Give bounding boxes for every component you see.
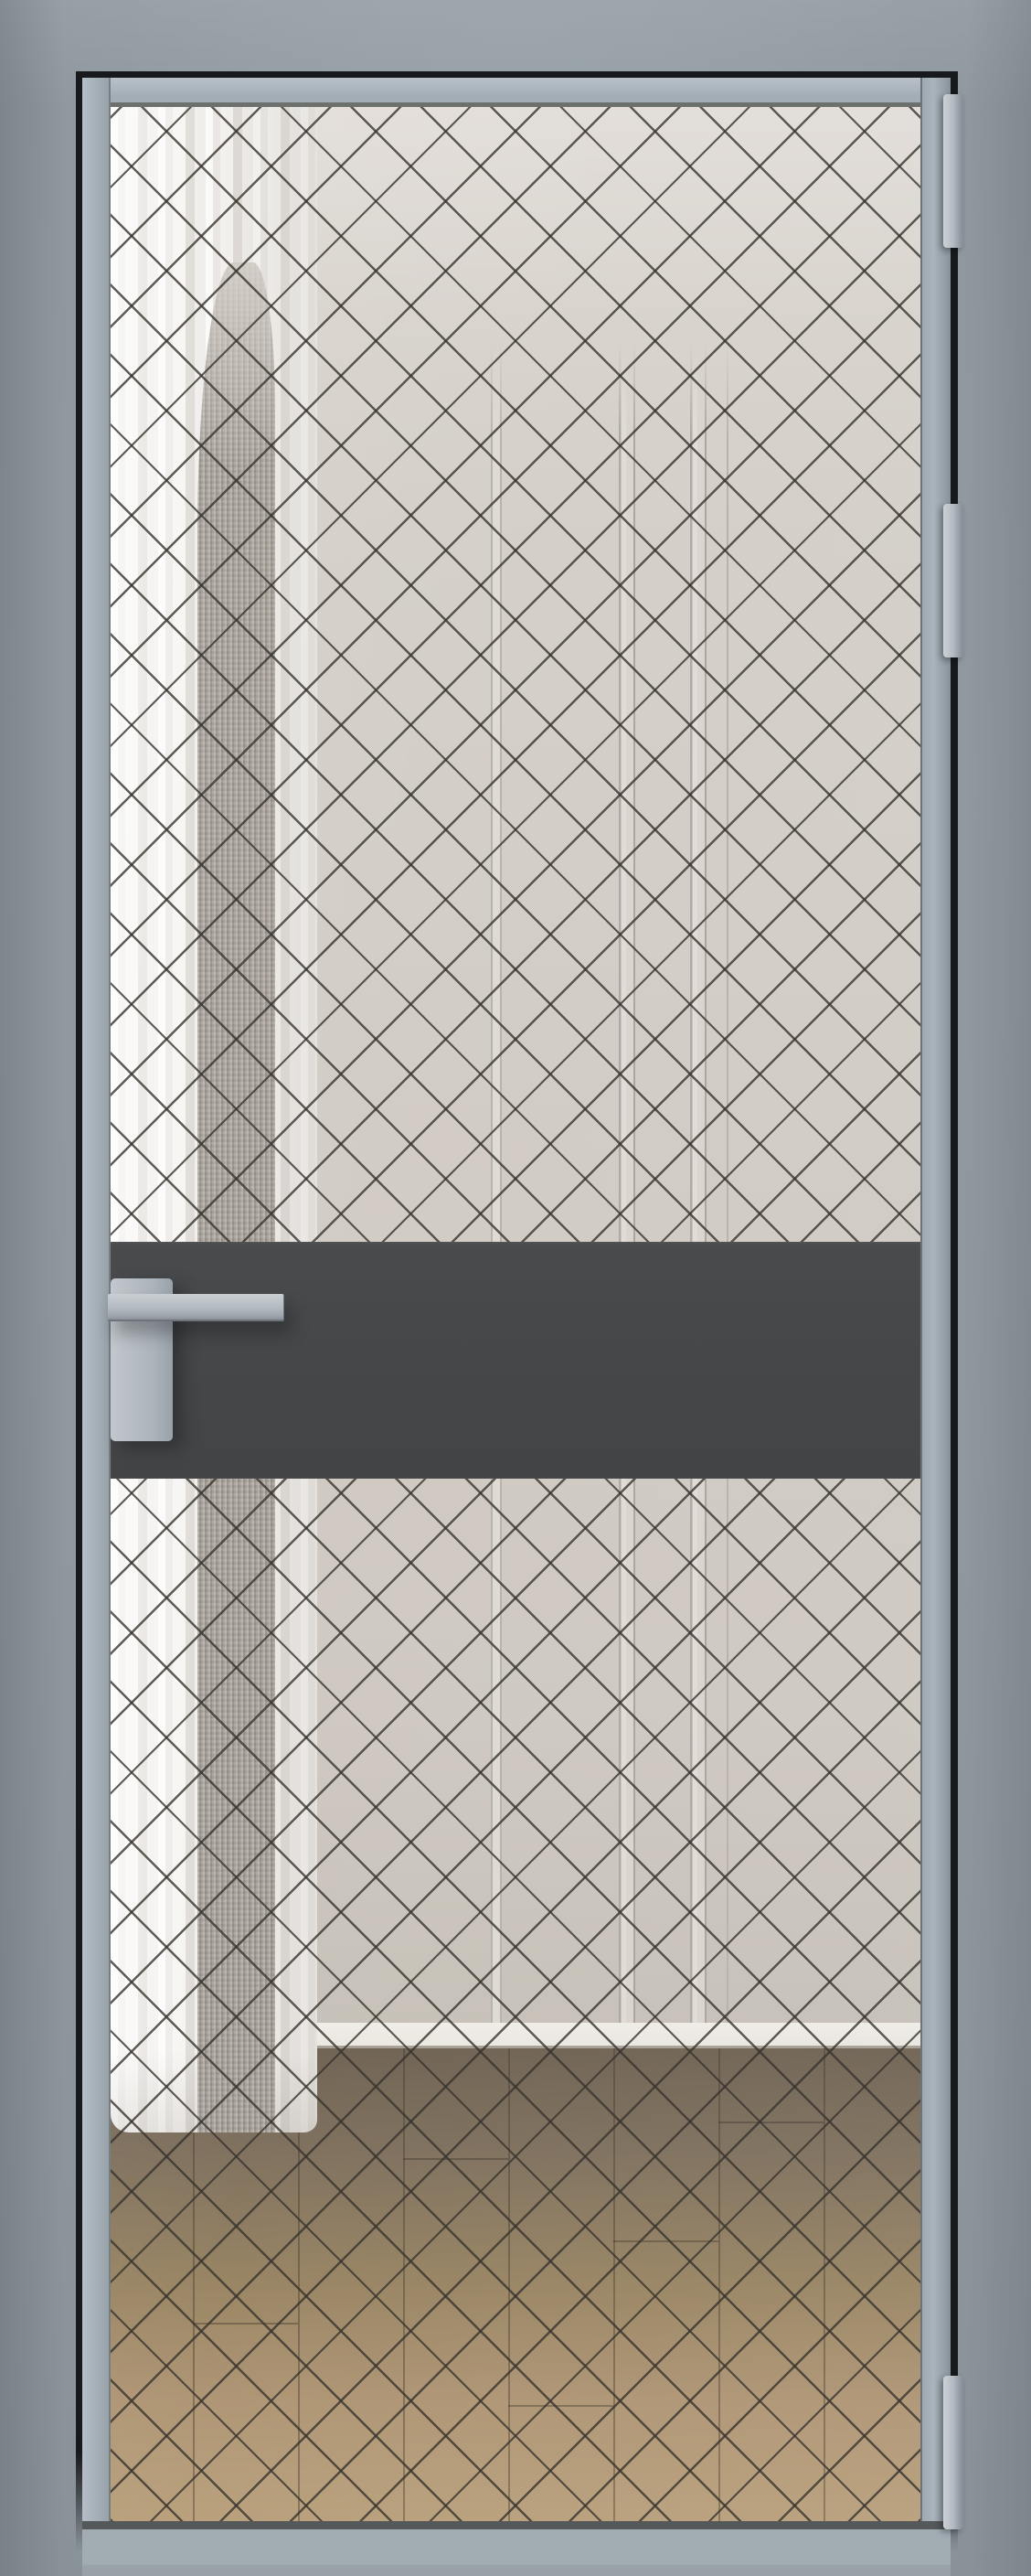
decorative-insert-panel: [111, 1242, 920, 1479]
frame-right-stile: [920, 78, 951, 2576]
frame-bottom-rail: [82, 2521, 951, 2576]
door-hinge: [943, 94, 963, 248]
frame-top-rail: [82, 78, 951, 108]
handle-lever: [108, 1294, 284, 1321]
frame-left-stile: [82, 78, 111, 2576]
door-reveal-gap-right: [950, 71, 958, 2551]
door-hinge: [943, 504, 963, 657]
door-product-image: [0, 0, 1031, 2576]
door-hinge: [943, 2376, 963, 2529]
